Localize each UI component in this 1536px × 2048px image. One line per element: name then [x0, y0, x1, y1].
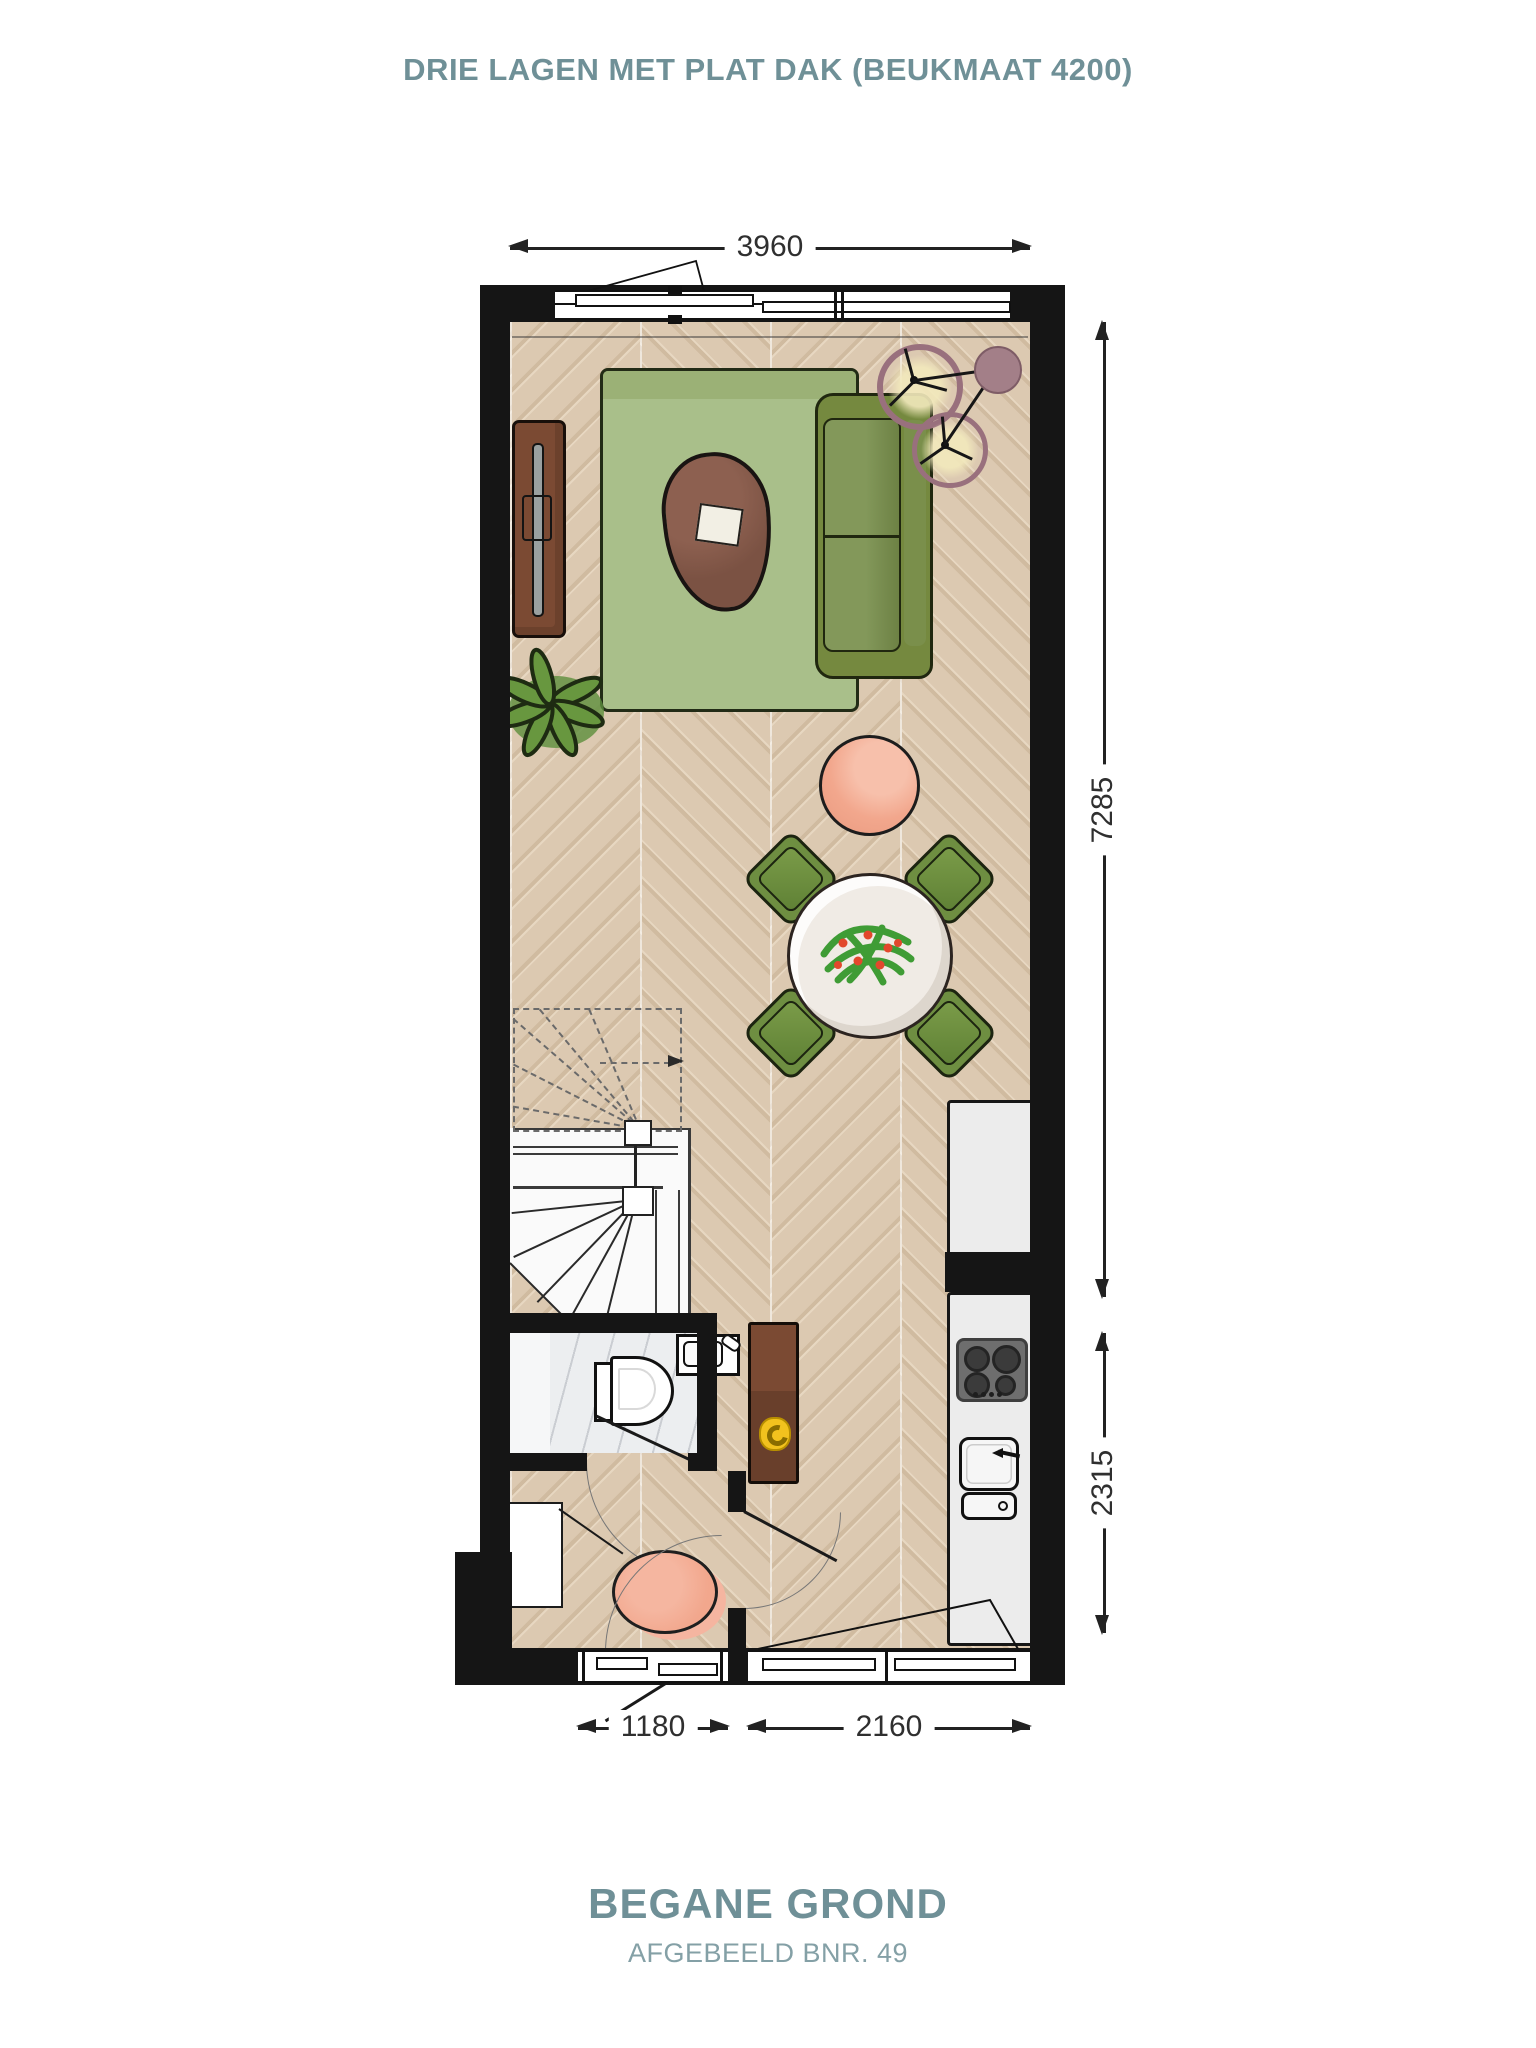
knob [989, 1392, 994, 1397]
sink-basin [966, 1444, 1012, 1484]
drawing-title: DRIE LAGEN MET PLAT DAK (BEUKMAAT 4200) [0, 52, 1536, 88]
plan-subtitle: AFGEBEELD BNR. 49 [0, 1938, 1536, 1969]
burner [964, 1346, 990, 1372]
door-jamb [720, 1652, 723, 1681]
sideboard-counter [947, 1100, 1035, 1258]
window-lock [668, 315, 682, 324]
dimension-bottom-left: 1180 [578, 1712, 728, 1742]
window-mullion [834, 292, 837, 318]
arrow-right-icon [1012, 239, 1032, 253]
dimension-bottom-right: 2160 [748, 1712, 1030, 1742]
plan-title: BEGANE GROND [0, 1880, 1536, 1928]
bag-icon [759, 1417, 791, 1451]
window-mullion [841, 292, 844, 318]
dimension-right-upper: 7285 [1088, 322, 1118, 1297]
dimension-value: 1180 [609, 1710, 698, 1744]
sofa-seat [823, 418, 901, 652]
tv-mount [522, 495, 552, 541]
window-panel [762, 1658, 876, 1671]
window-sill-line [512, 336, 1028, 338]
wall-step [455, 1552, 512, 1685]
rug-fold [603, 371, 856, 399]
arrow-left-icon [746, 1719, 766, 1733]
pouf-icon [819, 735, 920, 836]
toilet-seat [618, 1368, 656, 1410]
stairs-up-arrow [668, 1055, 684, 1067]
window-tilt-symbol [750, 1592, 1028, 1652]
stair-tread [678, 1190, 680, 1313]
cabinet-icon [748, 1322, 799, 1484]
sofa-cushion-split [825, 535, 899, 538]
drainer [961, 1492, 1017, 1520]
centerpiece-plant-icon [812, 912, 924, 998]
arrow-down-icon [1095, 1615, 1109, 1635]
book-icon [695, 503, 744, 547]
knob [973, 1392, 978, 1397]
stair-tread [513, 1153, 678, 1155]
window-mullion [885, 1652, 888, 1681]
window-icon [748, 1650, 1030, 1683]
door-panel [596, 1657, 648, 1670]
sliding-panel [762, 301, 1011, 313]
arrow-left-icon [508, 239, 528, 253]
wall-hall [728, 1608, 746, 1650]
bag-detail [763, 1421, 792, 1450]
arrow-up-icon [1095, 320, 1109, 340]
drain-hole [998, 1501, 1008, 1511]
arrow-up-icon [1095, 1331, 1109, 1351]
faucet-spout [992, 1448, 1003, 1458]
wall-hall [728, 1471, 746, 1512]
stair-post [624, 1120, 652, 1146]
lamp-shade-icon [974, 346, 1022, 394]
dimension-top: 3960 [510, 232, 1030, 262]
tv-sideboard-icon [512, 420, 566, 638]
window-panel [894, 1658, 1016, 1671]
floor-plan-sheet: DRIE LAGEN MET PLAT DAK (BEUKMAAT 4200) [0, 0, 1536, 2048]
burner [992, 1345, 1021, 1374]
meter-closet [505, 1502, 563, 1608]
wall-bathroom-bottom [688, 1453, 717, 1471]
dimension-value: 2315 [1086, 1438, 1120, 1529]
stairs-edge [688, 1128, 691, 1315]
kitchen-sink-icon [959, 1437, 1019, 1491]
wall-kitchen-nib [945, 1252, 1030, 1292]
door-jamb [582, 1652, 585, 1681]
wall-bathroom-top [505, 1313, 717, 1333]
wall-bathroom-bottom [505, 1453, 587, 1471]
arrow-left-icon [576, 1719, 596, 1733]
stair-tread [655, 1190, 657, 1313]
bathroom-tile [510, 1333, 550, 1453]
spiral-stairs-icon [510, 1128, 690, 1315]
dimension-value: 7285 [1086, 764, 1120, 855]
stairs-walkline [600, 1062, 670, 1064]
arrow-down-icon [1095, 1279, 1109, 1299]
knob [981, 1392, 986, 1397]
arrow-right-icon [710, 1719, 730, 1733]
stair-post [622, 1186, 654, 1216]
wall-right [1030, 285, 1065, 1685]
arrow-right-icon [1012, 1719, 1032, 1733]
wall-left [480, 285, 510, 1685]
front-door-frame [578, 1650, 728, 1683]
door-panel [658, 1663, 718, 1676]
dimension-value: 3960 [725, 230, 816, 264]
knob [997, 1392, 1002, 1397]
stair-tread [513, 1146, 678, 1148]
wall-bathroom-right [697, 1313, 717, 1471]
cooktop-icon [956, 1338, 1028, 1402]
dimension-value: 2160 [844, 1710, 935, 1744]
dimension-right-lower: 2315 [1088, 1333, 1118, 1633]
